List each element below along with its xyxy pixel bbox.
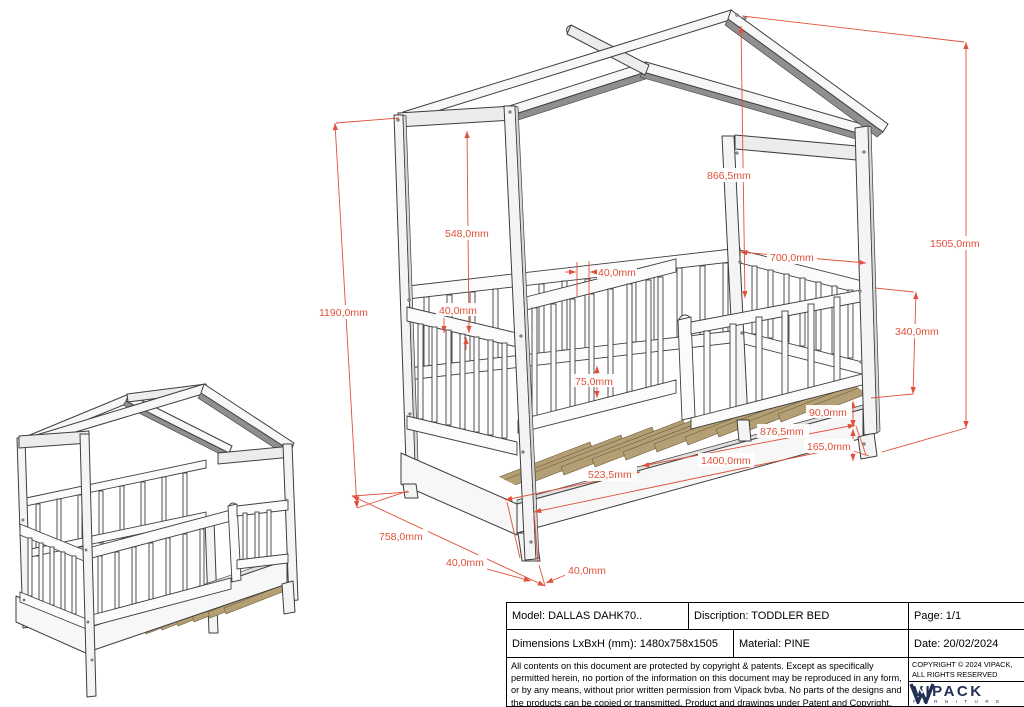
dimension-annotations: 1505,0mm 866,5mm 700,0mm 548,0mm 1190,0m… [316,16,991,586]
dim-label-40-gap: 40,0mm [598,267,636,279]
description-cell: Discription: TODDLER BED [689,603,909,630]
technical-drawing-sheet: 1505,0mm 866,5mm 700,0mm 548,0mm 1190,0m… [0,0,1024,707]
small-header [19,431,89,448]
dim-label-40-foot-left: 40,0mm [446,557,484,569]
dim-label-876: 876,5mm [760,426,804,438]
small-bed-drawing [16,384,298,697]
dimensions-cell: Dimensions LxBxH (mm): 1480x758x1505 [507,630,734,658]
dim-label-90: 90,0mm [809,407,847,419]
dim-label-75: 75,0mm [575,376,613,388]
dim-label-165: 165,0mm [807,441,851,453]
title-block: Model: DALLAS DAHK70.. Discription: TODD… [506,602,1024,707]
dim-label-1190: 1190,0mm [319,307,368,319]
legal-text: All contents on this document are protec… [507,658,909,706]
small-post [80,434,96,697]
right-header-beam [735,135,868,161]
dim-label-1400: 1400,0mm [701,455,751,467]
dim-label-866: 866,5mm [707,170,751,182]
dim-label-1505: 1505,0mm [930,238,980,250]
dim-label-340: 340,0mm [895,326,939,338]
foot-end-rail [407,307,517,455]
model-cell: Model: DALLAS DAHK70.. [507,603,689,630]
back-left-post [394,115,419,492]
vipack-logo-mark [909,682,935,704]
dim-label-523: 523,5mm [588,469,632,481]
material-cell: Material: PINE [734,630,909,658]
bed-drawings: 1505,0mm 866,5mm 700,0mm 548,0mm 1190,0m… [0,0,1024,707]
dim-label-700: 700,0mm [770,252,814,264]
page-cell: Page: 1/1 [909,603,1024,630]
small-roof [20,384,294,457]
vipack-logo: VIPACK F U R N I T U R E [909,682,1024,706]
date-cell: Date: 20/02/2024 [909,630,1024,658]
dim-label-548: 548,0mm [445,228,489,240]
dim-label-40-rail: 40,0mm [439,305,477,317]
copyright-text: COPYRIGHT © 2024 VIPACK, ALL RIGHTS RESE… [909,658,1024,682]
dim-label-758: 758,0mm [379,531,423,543]
dim-label-40-foot-right: 40,0mm [568,565,606,577]
main-bed-drawing [394,10,934,561]
